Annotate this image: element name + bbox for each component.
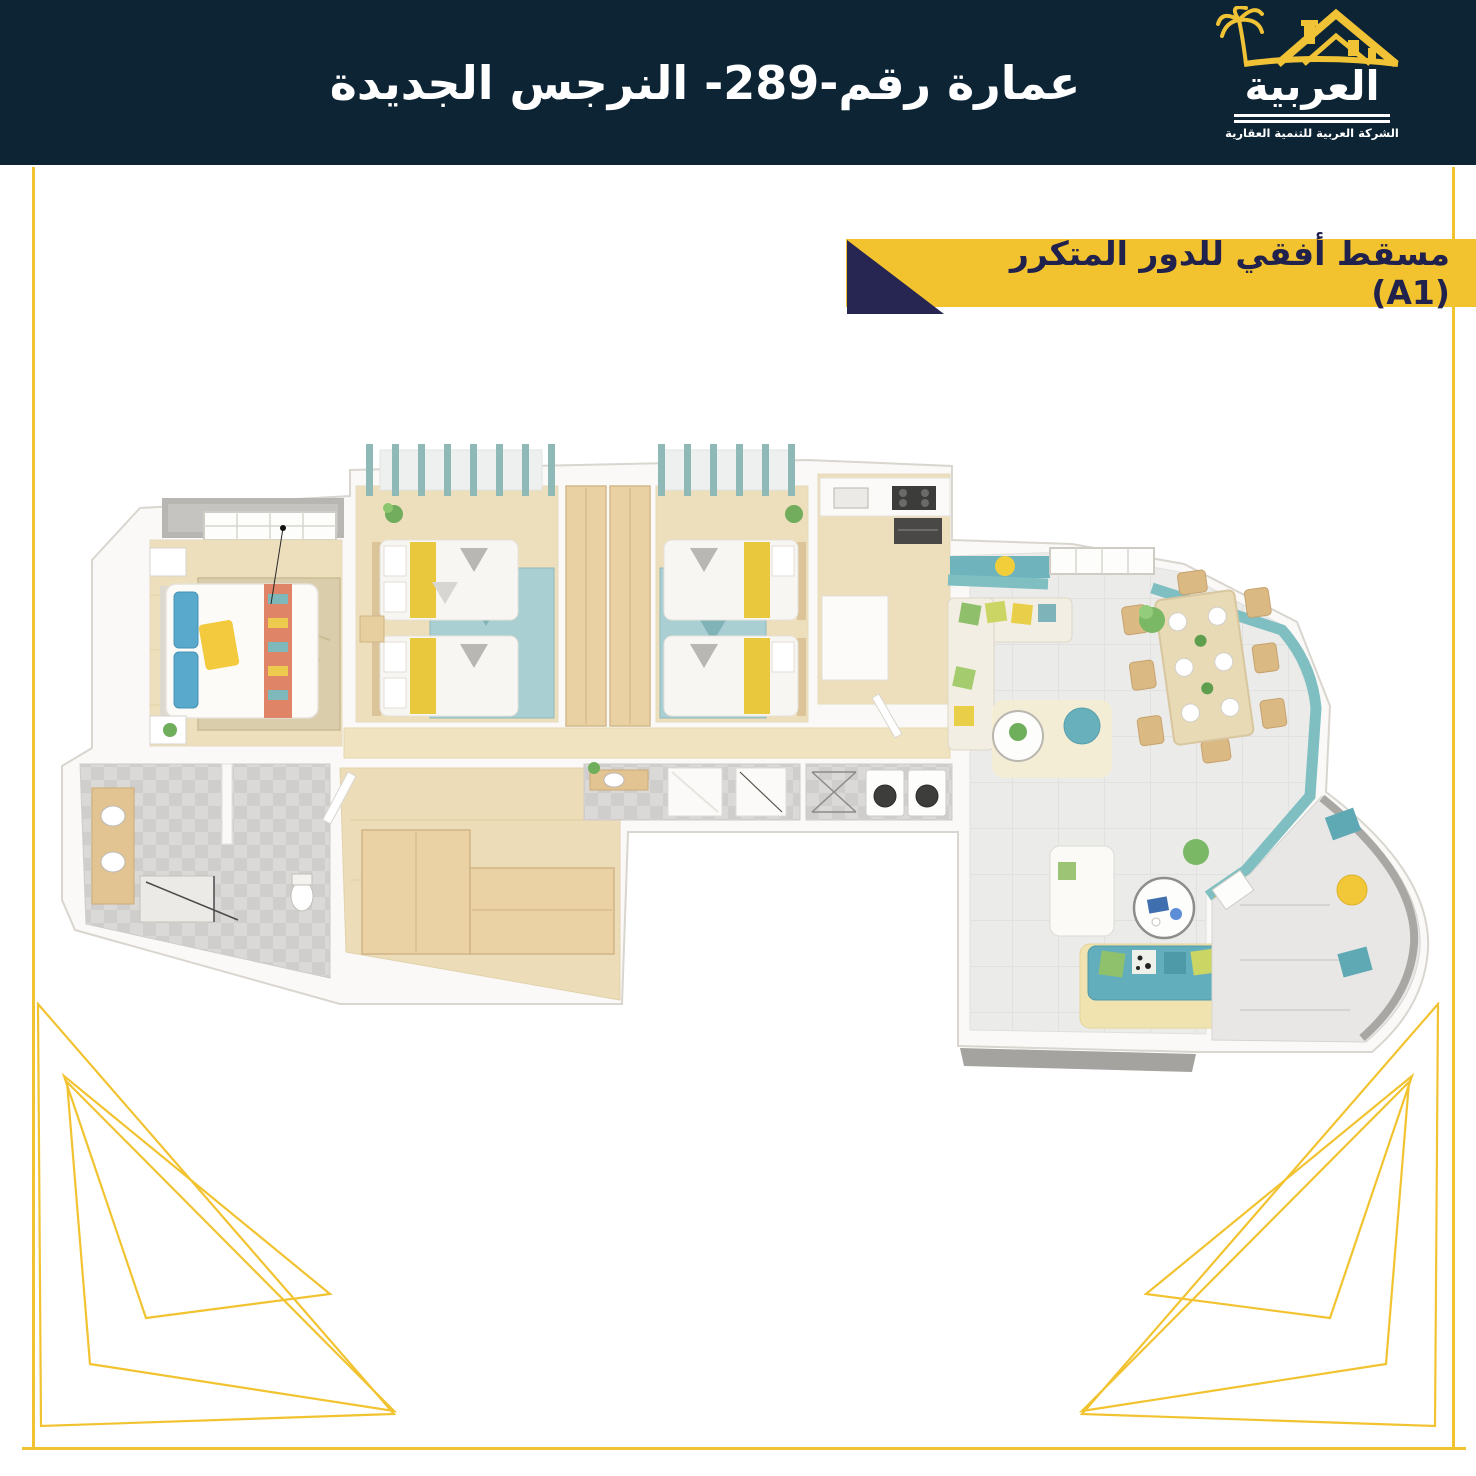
house-roof-icon xyxy=(1244,14,1398,64)
plant xyxy=(588,762,600,774)
page-border-right xyxy=(1452,167,1455,1448)
bathroom-2 xyxy=(584,762,800,820)
single-bed xyxy=(372,636,518,716)
logo-brand-text: العربية xyxy=(1216,64,1408,109)
nightstand xyxy=(360,616,384,642)
single-bed xyxy=(664,540,806,620)
kitchen xyxy=(818,474,950,738)
pouf xyxy=(1064,708,1100,744)
bedroom-1 xyxy=(356,444,558,722)
banner-label: مسقط أفقي للدور المتكرر (A1) xyxy=(846,239,1476,307)
wardrobe xyxy=(470,868,614,954)
single-bed xyxy=(664,636,806,716)
cooktop xyxy=(892,486,936,510)
palm-tree-icon xyxy=(1218,7,1262,64)
palm-and-house-icon xyxy=(1216,6,1408,68)
armchair xyxy=(1050,846,1114,936)
bathroom-1 xyxy=(80,764,330,978)
logo-rule xyxy=(1234,114,1390,117)
header-bar: عمارة رقم-289- النرجس الجديدة xyxy=(0,0,1476,165)
bedroom-2 xyxy=(656,444,808,722)
plant xyxy=(1183,839,1209,865)
master-bedroom xyxy=(150,525,342,746)
logo-rule xyxy=(1234,120,1390,123)
floor-plan-illustration xyxy=(40,420,1440,1080)
page-title: عمارة رقم-289- النرجس الجديدة xyxy=(200,0,1210,165)
logo-subtitle: الشركة العربية للتنمية العقارية xyxy=(1216,126,1408,140)
plant xyxy=(163,723,177,737)
balcony-table xyxy=(1337,875,1367,905)
shower xyxy=(140,876,214,922)
company-logo: العربية الشركة العربية للتنمية العقارية xyxy=(1216,2,1416,162)
vanity xyxy=(92,788,134,904)
laundry-room xyxy=(806,764,952,820)
nightstand xyxy=(150,548,186,576)
section-banner: مسقط أفقي للدور المتكرر (A1) xyxy=(846,239,1476,307)
sink xyxy=(834,488,868,508)
brochure-page: عمارة رقم-289- النرجس الجديدة xyxy=(0,0,1476,1476)
kitchen-island xyxy=(822,596,888,680)
hallway xyxy=(344,728,950,758)
plant xyxy=(785,505,803,523)
master-bed xyxy=(160,584,318,718)
single-bed xyxy=(372,540,518,620)
